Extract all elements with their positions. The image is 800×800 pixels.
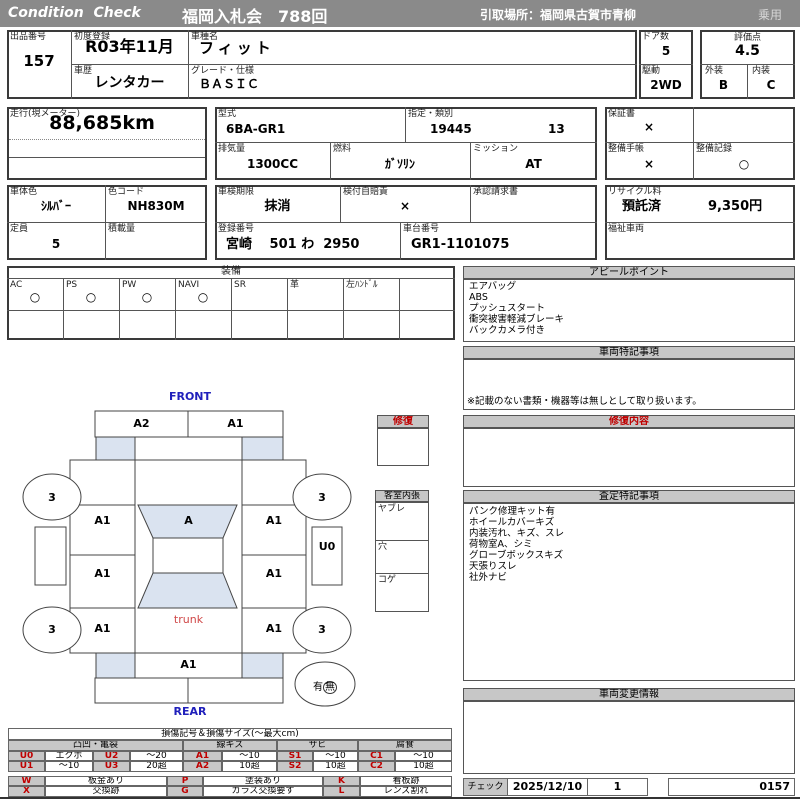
equipment-title: 装備 bbox=[7, 267, 455, 277]
auction-sheet: Condition Check 福岡入札会 788回 引取場所：福岡県古賀市青柳… bbox=[0, 0, 800, 800]
check-number: 0157 bbox=[668, 778, 795, 796]
legend-value: 〜10 bbox=[395, 751, 452, 761]
divider-line bbox=[215, 142, 597, 143]
legend-value: 塗装あり bbox=[203, 776, 323, 786]
transmission-label: ミッション bbox=[473, 144, 518, 154]
brand-title: Condition Check bbox=[8, 5, 141, 21]
assessment-line: ホイールカバーキズ bbox=[469, 517, 554, 528]
assessment-line: 内装汚れ、キズ、スレ bbox=[469, 528, 564, 539]
divider-line bbox=[399, 278, 400, 340]
assessment-line: 社外ナビ bbox=[469, 572, 507, 583]
classification-number: 13 bbox=[548, 123, 565, 136]
legend-code: U1 bbox=[8, 761, 45, 772]
divider-line bbox=[215, 222, 597, 223]
score-label: 評価点 bbox=[700, 33, 795, 43]
legend-code: A1 bbox=[183, 751, 222, 761]
divider-line bbox=[175, 278, 176, 340]
exterior-grade: B bbox=[700, 79, 747, 92]
model-name: フィット bbox=[199, 42, 275, 55]
mark-left-quarter: A1 bbox=[70, 622, 135, 635]
mark-front-bumper-right: A1 bbox=[188, 417, 283, 430]
legend-value: 板金あり bbox=[45, 776, 167, 786]
equipment-label-ac: AC bbox=[10, 280, 22, 290]
chassis-number-label: 車台番号 bbox=[403, 224, 439, 234]
legend-value: ガラス交換要す bbox=[203, 786, 323, 797]
mark-left-door: A1 bbox=[70, 567, 135, 580]
legend-code: C1 bbox=[358, 751, 395, 761]
type-code: 6BA-GR1 bbox=[226, 123, 285, 136]
mileage-value: 88,685km bbox=[12, 117, 192, 130]
legend-code: G bbox=[167, 786, 203, 797]
legend-code: A2 bbox=[183, 761, 222, 772]
grade-label: グレード・仕様 bbox=[191, 66, 254, 76]
welfare-vehicle-label: 福祉車両 bbox=[608, 224, 644, 234]
legend-group-dents: 凸凹・亀裂 bbox=[8, 740, 183, 751]
equipment-label-navi: NAVI bbox=[178, 280, 199, 290]
first-registration: R03年11月 bbox=[71, 40, 188, 53]
divider-line bbox=[105, 185, 106, 260]
divider-line bbox=[400, 222, 401, 260]
legend-value: 〜10 bbox=[313, 751, 358, 761]
type-code-label: 型式 bbox=[218, 109, 236, 119]
legend-group-scratch: 線キズ bbox=[183, 740, 277, 751]
maintenance-record-mark: ○ bbox=[693, 158, 795, 171]
legend-code: X bbox=[8, 786, 45, 797]
legend-code: P bbox=[167, 776, 203, 786]
transmission-value: AT bbox=[470, 158, 597, 171]
legend-value: 〜20 bbox=[130, 751, 183, 761]
spare-tire-indicator: 有無 bbox=[297, 678, 353, 694]
pickup-location: 引取場所：福岡県古賀市青柳 bbox=[480, 6, 636, 23]
divider-line bbox=[71, 64, 637, 65]
mark-front-bumper-left: A2 bbox=[95, 417, 188, 430]
maintenance-book-label: 整備手帳 bbox=[608, 144, 644, 154]
appeal-line: ABS bbox=[469, 292, 488, 303]
equipment-label-pw: PW bbox=[122, 280, 136, 290]
spare-has-label: 有 bbox=[313, 682, 323, 693]
legend-code: K bbox=[323, 776, 360, 786]
lot-number: 157 bbox=[7, 55, 71, 68]
mark-wheel-rear-right: 3 bbox=[307, 623, 337, 636]
spare-none-label: 無 bbox=[323, 681, 337, 694]
legend-value: 10超 bbox=[222, 761, 277, 772]
auction-title: 福岡入札会 788回 bbox=[182, 3, 327, 27]
vehicle-notes-disclaimer: ※記載のない書類・機器等は無しとして取り扱います。 bbox=[467, 396, 702, 407]
mark-rear-panel: A1 bbox=[135, 658, 242, 671]
legend-value: 〜10 bbox=[45, 761, 93, 772]
registration-number: 宮崎 501 わ 2950 bbox=[226, 238, 359, 251]
mark-right-front-panel: A1 bbox=[242, 514, 306, 527]
body-color: ｼﾙﾊﾞｰ bbox=[7, 200, 105, 213]
rear-label: REAR bbox=[158, 705, 222, 718]
designation-label: 指定・類別 bbox=[408, 109, 453, 119]
divider-line bbox=[9, 157, 205, 158]
maintenance-book-mark: × bbox=[605, 158, 693, 171]
legend-code: U3 bbox=[93, 761, 130, 772]
equipment-mark-ps: ○ bbox=[63, 291, 119, 304]
appeal-line: バックカメラ付き bbox=[469, 325, 545, 336]
divider-line bbox=[470, 185, 471, 222]
repair-content-header: 修復内容 bbox=[463, 415, 795, 428]
registration-number-label: 登録番号 bbox=[218, 224, 254, 234]
legend-title: 損傷記号＆損傷サイズ(〜最大cm) bbox=[8, 728, 452, 740]
history: レンタカー bbox=[71, 77, 188, 90]
inspection-label: 車検期限 bbox=[218, 187, 254, 197]
legend-code: S2 bbox=[277, 761, 313, 772]
interior-grade: C bbox=[747, 79, 795, 92]
recycle-fee-label: リサイクル料 bbox=[608, 187, 662, 197]
load-label: 積載量 bbox=[108, 224, 135, 234]
header-bar: Condition Check 福岡入札会 788回 引取場所：福岡県古賀市青柳… bbox=[0, 0, 800, 27]
appeal-line: プッシュスタート bbox=[469, 303, 545, 314]
legend-code: U2 bbox=[93, 751, 130, 761]
legend-value: 〜10 bbox=[222, 751, 277, 761]
divider-line bbox=[343, 278, 344, 340]
divider-line bbox=[639, 64, 693, 65]
mark-right-quarter: A1 bbox=[242, 622, 306, 635]
divider-line bbox=[605, 142, 795, 143]
equipment-label-lhd: 左ﾊﾝﾄﾞﾙ bbox=[346, 280, 378, 290]
equipment-mark-navi: ○ bbox=[175, 291, 231, 304]
front-label: FRONT bbox=[160, 390, 220, 403]
mark-wheel-front-left: 3 bbox=[37, 491, 67, 504]
color-code: NH830M bbox=[105, 200, 207, 213]
exterior-label: 外装 bbox=[705, 66, 723, 76]
mark-wheel-front-right: 3 bbox=[307, 491, 337, 504]
legend-group-rust: サビ bbox=[277, 740, 358, 751]
check-label: チェック bbox=[463, 778, 508, 796]
mark-left-front-panel: A1 bbox=[70, 514, 135, 527]
history-label: 車歴 bbox=[74, 66, 92, 76]
capacity-label: 定員 bbox=[10, 224, 28, 234]
displacement-value: 1300CC bbox=[215, 158, 330, 171]
approval-label: 承認請求書 bbox=[473, 187, 518, 197]
legend-code: C2 bbox=[358, 761, 395, 772]
legend-value: 10超 bbox=[395, 761, 452, 772]
score-value: 4.5 bbox=[700, 45, 795, 58]
legend-value: 交換跡 bbox=[45, 786, 167, 797]
legend-code: L bbox=[323, 786, 360, 797]
legend-value: 看板跡 bbox=[360, 776, 452, 786]
inspection-value: 抹消 bbox=[215, 200, 340, 213]
legend-value: 10超 bbox=[313, 761, 358, 772]
equipment-mark-pw: ○ bbox=[119, 291, 175, 304]
divider-line bbox=[7, 222, 207, 223]
legend-code: S1 bbox=[277, 751, 313, 761]
interior-label: 内装 bbox=[752, 66, 770, 76]
divider-line bbox=[605, 222, 795, 223]
legend-code: W bbox=[8, 776, 45, 786]
divider-line bbox=[9, 139, 205, 140]
insurance-label: 検付自賠責 bbox=[343, 187, 388, 197]
mark-wheel-rear-left: 3 bbox=[37, 623, 67, 636]
doors-label: ドア数 bbox=[642, 32, 669, 42]
recycle-fee: 9,350円 bbox=[708, 200, 762, 213]
equipment-label-ps: PS bbox=[66, 280, 77, 290]
body-color-label: 車体色 bbox=[10, 187, 37, 197]
assessment-line: 荷物室A、シミ bbox=[469, 539, 533, 550]
legend-value: 20超 bbox=[130, 761, 183, 772]
displacement-label: 排気量 bbox=[218, 144, 245, 154]
legend-code: U0 bbox=[8, 751, 45, 761]
assessment-line: グローブボックスキズ bbox=[469, 550, 563, 561]
divider-line bbox=[231, 278, 232, 340]
capacity-value: 5 bbox=[7, 238, 105, 251]
usage-type: 乗用 bbox=[758, 6, 782, 23]
vehicle-notes-header: 車両特記事項 bbox=[463, 346, 795, 359]
check-count: 1 bbox=[587, 778, 648, 796]
fuel-label: 燃料 bbox=[333, 144, 351, 154]
appeal-line: エアバッグ bbox=[469, 281, 516, 292]
color-code-label: 色コード bbox=[108, 187, 144, 197]
divider-line bbox=[287, 278, 288, 340]
chassis-number: GR1-1101075 bbox=[411, 238, 509, 251]
maintenance-record-label: 整備記録 bbox=[696, 144, 732, 154]
trunk-label: trunk bbox=[135, 613, 242, 626]
mark-right-sill: U0 bbox=[312, 540, 342, 553]
appeal-points-header: アピールポイント bbox=[463, 266, 795, 279]
warranty-label: 保証書 bbox=[608, 109, 635, 119]
warranty-mark: × bbox=[605, 121, 693, 134]
assessment-line: 天張りスレ bbox=[469, 561, 517, 572]
repair-content-box bbox=[463, 428, 795, 487]
mark-windshield: A bbox=[135, 514, 242, 527]
equipment-mark-ac: ○ bbox=[7, 291, 63, 304]
check-date: 2025/12/10 bbox=[507, 778, 588, 796]
change-info-box bbox=[463, 701, 795, 774]
recycle-status: 預託済 bbox=[622, 200, 661, 213]
divider-line bbox=[119, 278, 120, 340]
drive-label: 駆動 bbox=[642, 66, 660, 76]
assessment-notes-header: 査定特記事項 bbox=[463, 490, 795, 503]
divider-line bbox=[63, 278, 64, 340]
mark-right-door: A1 bbox=[242, 567, 306, 580]
bottom-rule bbox=[0, 797, 800, 799]
designation-number: 19445 bbox=[430, 123, 472, 136]
equipment-label-sr: SR bbox=[234, 280, 246, 290]
fuel-value: ｶﾞｿﾘﾝ bbox=[330, 158, 470, 171]
equipment-label-leather: 革 bbox=[290, 280, 299, 290]
grade: ＢＡＳＩＣ bbox=[199, 78, 259, 91]
legend-value: エクボ bbox=[45, 751, 93, 761]
assessment-line: パンク修理キット有 bbox=[469, 506, 555, 517]
lot-number-label: 出品番号 bbox=[10, 32, 46, 42]
insurance-mark: × bbox=[340, 200, 470, 213]
divider-line bbox=[405, 107, 406, 142]
appeal-line: 衝突被害軽減ブレーキ bbox=[469, 314, 564, 325]
doors-value: 5 bbox=[639, 45, 693, 58]
legend-value: レンズ割れ bbox=[360, 786, 452, 797]
change-info-header: 車両変更情報 bbox=[463, 688, 795, 701]
legend-group-corrosion: 腐食 bbox=[358, 740, 452, 751]
drive-value: 2WD bbox=[639, 79, 693, 92]
